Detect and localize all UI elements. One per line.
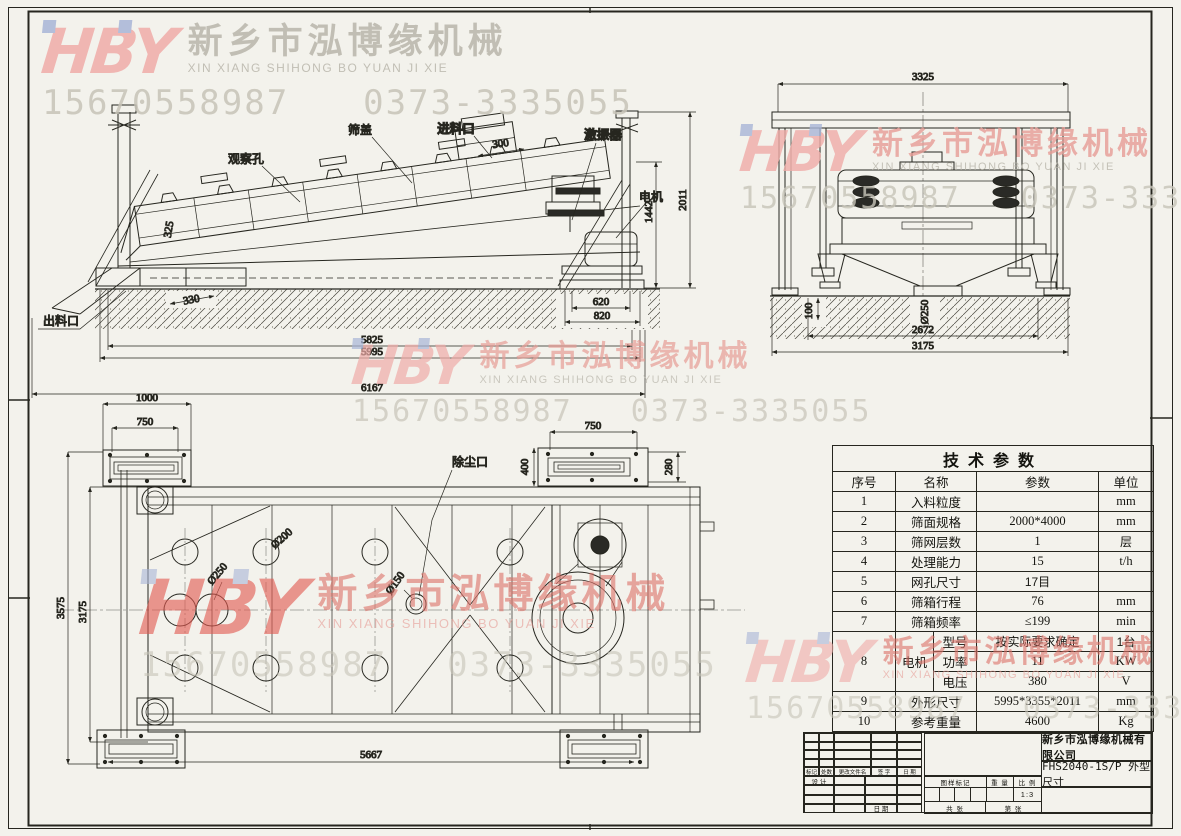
title-block: 标记 处数 更改文件名 签 字 日 期 设 计 日 期 图样标记 重 量 比 例… bbox=[803, 732, 1153, 813]
row-unit: t/h bbox=[1099, 552, 1154, 572]
label-discharge-outlet: 出料口 bbox=[43, 314, 79, 328]
dim-5667: 5667 bbox=[360, 749, 383, 761]
row-unit: Kg bbox=[1099, 712, 1154, 732]
row-name: 参考重量 bbox=[896, 712, 977, 732]
label-screen-cover: 筛盖 bbox=[348, 122, 372, 137]
dim-6167: 6167 bbox=[361, 382, 384, 394]
dim-diam-250-plan: Ø250 bbox=[205, 560, 230, 587]
sheets-total-label: 共 张 bbox=[924, 801, 986, 814]
sheet-number-label: 第 张 bbox=[985, 801, 1042, 814]
blank-cell bbox=[939, 787, 955, 802]
label-feed-inlet: 进料口 bbox=[437, 121, 475, 136]
row-unit: mm bbox=[1099, 512, 1154, 532]
row-no: 2 bbox=[833, 512, 896, 532]
row-unit: mm bbox=[1099, 592, 1154, 612]
dim-400: 400 bbox=[519, 458, 531, 475]
row-no: 9 bbox=[833, 692, 896, 712]
motor-sub-unit: 1台 bbox=[1099, 632, 1154, 652]
signature-grid: 设 计 日 期 bbox=[804, 776, 924, 813]
row-no: 5 bbox=[833, 572, 896, 592]
label-dust-port: 除尘口 bbox=[452, 454, 488, 469]
dim-diam-150: Ø150 bbox=[384, 569, 408, 596]
row-value bbox=[977, 492, 1099, 512]
scale-value: 1:3 bbox=[1013, 787, 1042, 802]
blank-cell bbox=[970, 787, 987, 802]
row-no: 10 bbox=[833, 712, 896, 732]
blank-cell bbox=[954, 787, 971, 802]
motor-sub-label: 型号 bbox=[934, 632, 977, 652]
company-name: 新乡市泓博缘机械有限公司 bbox=[1041, 733, 1153, 761]
label-observation-hole: 观察孔 bbox=[228, 152, 264, 166]
dim-750-right: 750 bbox=[585, 420, 602, 432]
row-no: 3 bbox=[833, 532, 896, 552]
blank-cell bbox=[924, 733, 1042, 776]
row-value: 5995*3355*2011 bbox=[977, 692, 1099, 712]
dim-5995: 5995 bbox=[361, 346, 384, 358]
row-name: 筛面规格 bbox=[896, 512, 977, 532]
dim-3175-plan: 3175 bbox=[77, 601, 89, 624]
revision-grid: 标记 处数 更改文件名 签 字 日 期 bbox=[804, 733, 924, 776]
rev-label-sign: 签 字 bbox=[871, 767, 897, 776]
row-unit bbox=[1099, 572, 1154, 592]
dim-820: 820 bbox=[594, 310, 611, 322]
row-value: 17目 bbox=[977, 572, 1099, 592]
dim-620: 620 bbox=[593, 296, 610, 308]
col-header-name: 名称 bbox=[896, 472, 977, 492]
dim-325: 325 bbox=[162, 220, 177, 239]
drawing-number: FHS2040-1S/P 外型尺寸 bbox=[1041, 761, 1153, 787]
technical-parameters-table: 技术参数 序号 名称 参数 单位 1入料粒度mm 2筛面规格2000*4000m… bbox=[832, 445, 1154, 732]
blank-cell bbox=[986, 787, 1014, 802]
motor-row-name: 电机 bbox=[896, 632, 934, 692]
rev-label-date: 日 期 bbox=[897, 767, 922, 776]
rev-label-count: 处数 bbox=[819, 767, 834, 776]
label-exciter: 激振器 bbox=[584, 127, 622, 142]
end-view: 3325 Ø250 100 2672 3175 bbox=[770, 71, 1070, 356]
row-unit: 层 bbox=[1099, 532, 1154, 552]
date-label: 日 期 bbox=[865, 804, 897, 813]
drawing-sheet: HBY 新乡市泓博缘机械 XIN XIANG SHIHONG BO YUAN J… bbox=[0, 0, 1181, 836]
motor-sub-value: 按实际要求确定 bbox=[977, 632, 1099, 652]
row-unit: mm bbox=[1099, 692, 1154, 712]
row-name: 筛箱行程 bbox=[896, 592, 977, 612]
motor-sub-value: 11 bbox=[977, 652, 1099, 672]
blank-cell bbox=[1041, 787, 1153, 814]
row-value: 15 bbox=[977, 552, 1099, 572]
col-header-unit: 单位 bbox=[1099, 472, 1154, 492]
dim-1000: 1000 bbox=[136, 392, 159, 404]
row-value: 2000*4000 bbox=[977, 512, 1099, 532]
row-value: ≤199 bbox=[977, 612, 1099, 632]
dim-300: 300 bbox=[492, 137, 511, 151]
row-no: 7 bbox=[833, 612, 896, 632]
row-no: 6 bbox=[833, 592, 896, 612]
dim-750-left: 750 bbox=[137, 416, 154, 428]
row-no: 1 bbox=[833, 492, 896, 512]
dim-2011: 2011 bbox=[677, 189, 689, 211]
row-name: 筛网层数 bbox=[896, 532, 977, 552]
motor-sub-label: 电压 bbox=[934, 672, 977, 692]
motor-sub-label: 功率 bbox=[934, 652, 977, 672]
row-no: 4 bbox=[833, 552, 896, 572]
dim-3175: 3175 bbox=[912, 340, 935, 352]
row-name: 筛箱频率 bbox=[896, 612, 977, 632]
dim-3325: 3325 bbox=[912, 71, 935, 83]
dim-5825: 5825 bbox=[361, 334, 384, 346]
row-unit: mm bbox=[1099, 492, 1154, 512]
dim-280: 280 bbox=[663, 458, 675, 475]
dim-diam-200: Ø200 bbox=[269, 526, 296, 552]
col-header-value: 参数 bbox=[977, 472, 1099, 492]
dim-diam-250: Ø250 bbox=[919, 299, 931, 324]
motor-sub-value: 380 bbox=[977, 672, 1099, 692]
rev-label-file: 更改文件名 bbox=[834, 767, 871, 776]
motor-sub-unit: V bbox=[1099, 672, 1154, 692]
row-name: 外形尺寸 bbox=[896, 692, 977, 712]
col-header-no: 序号 bbox=[833, 472, 896, 492]
row-name: 处理能力 bbox=[896, 552, 977, 572]
motor-sub-unit: KW bbox=[1099, 652, 1154, 672]
design-label: 设 计 bbox=[804, 776, 834, 785]
blank-cell bbox=[924, 787, 940, 802]
dim-3575: 3575 bbox=[55, 597, 67, 620]
dim-100: 100 bbox=[803, 302, 815, 319]
row-value: 1 bbox=[977, 532, 1099, 552]
plan-view: 1000 750 750 400 280 除尘口 Ø200 Ø250 Ø150 … bbox=[55, 392, 745, 768]
side-view: 观察孔 筛盖 进料口 激振器 电机 出料口 300 330 325 1442 2… bbox=[32, 99, 696, 398]
row-name: 网孔尺寸 bbox=[896, 572, 977, 592]
rev-label-mark: 标记 bbox=[804, 767, 819, 776]
row-value: 4600 bbox=[977, 712, 1099, 732]
row-name: 入料粒度 bbox=[896, 492, 977, 512]
dim-2672: 2672 bbox=[912, 324, 934, 336]
row-unit: min bbox=[1099, 612, 1154, 632]
motor-row-no: 8 bbox=[833, 632, 896, 692]
table-title: 技术参数 bbox=[833, 446, 1154, 472]
row-value: 76 bbox=[977, 592, 1099, 612]
dim-1442: 1442 bbox=[643, 201, 655, 223]
